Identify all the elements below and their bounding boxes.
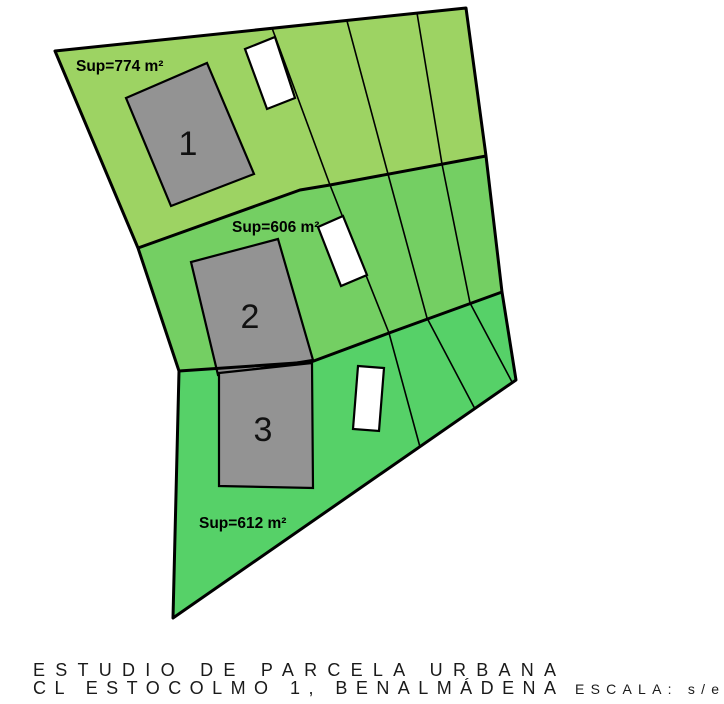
plan-title-line1: ESTUDIO DE PARCELA URBANA <box>33 660 556 680</box>
building-1-number: 1 <box>179 125 198 163</box>
building-2-number: 2 <box>241 298 260 336</box>
parcel-3-pool <box>353 366 384 431</box>
plan-scale-label: ESCALA: s/e <box>575 681 719 697</box>
site-plan-canvas: Sup=774 m² Sup=606 m² Sup=612 m² 1 2 3 E… <box>0 0 724 704</box>
plan-title-line2: CL ESTOCOLMO 1, BENALMÁDENA <box>33 678 556 698</box>
parcel-1-area-label: Sup=774 m² <box>76 58 163 75</box>
parcel-3-area-label: Sup=612 m² <box>199 515 286 532</box>
building-3-number: 3 <box>254 411 273 449</box>
parcel-study-plan: Sup=774 m² Sup=606 m² Sup=612 m² 1 2 3 E… <box>0 0 724 704</box>
parcel-2-area-label: Sup=606 m² <box>232 219 319 236</box>
